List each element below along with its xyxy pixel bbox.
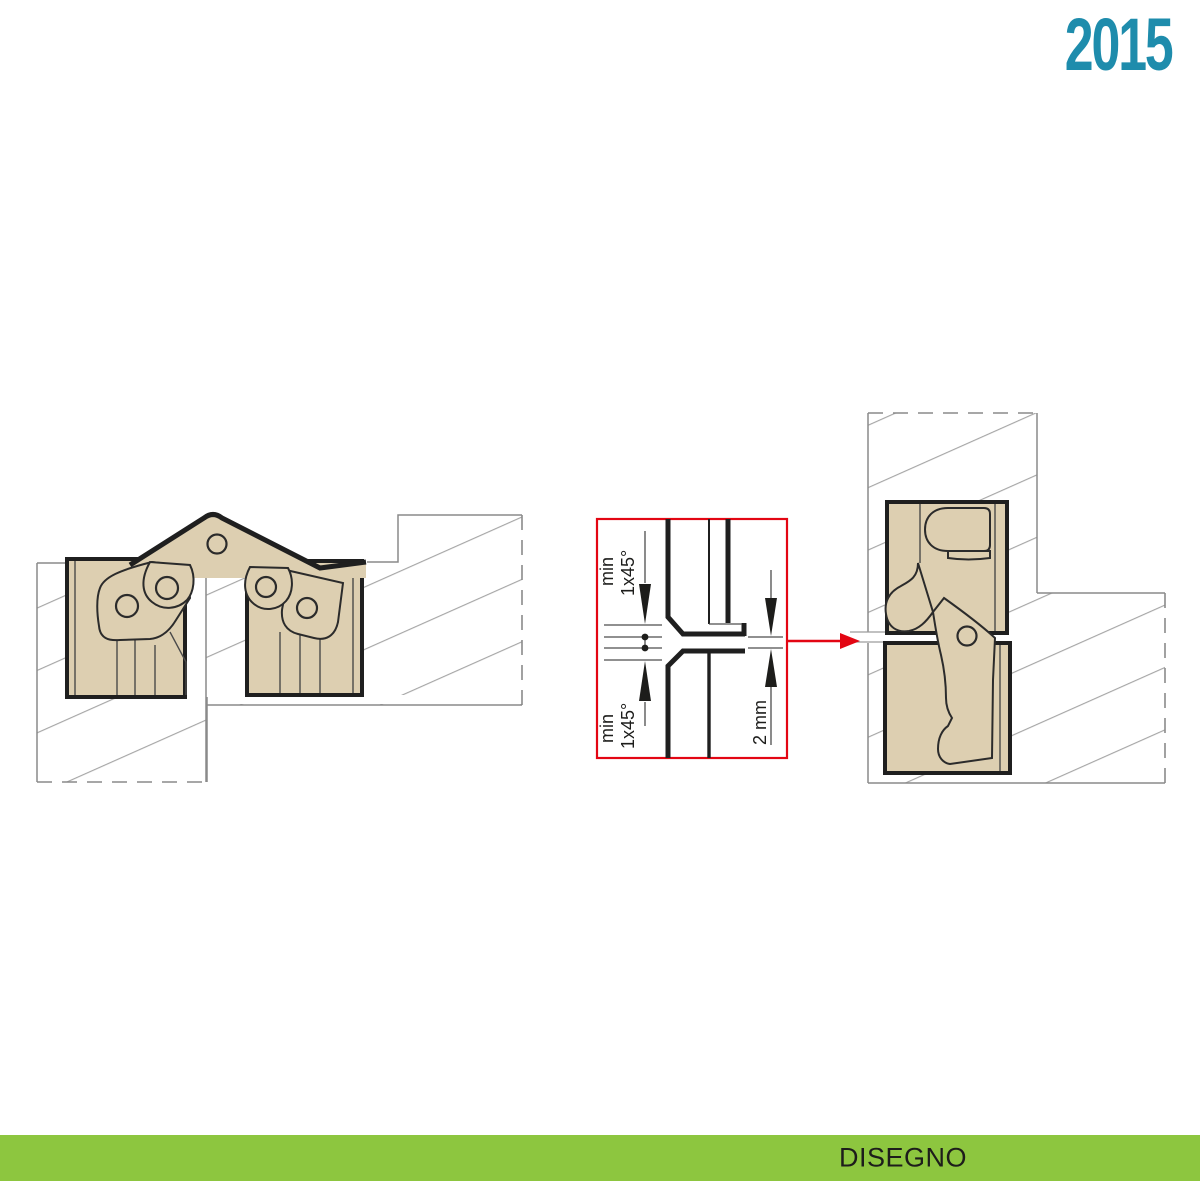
leader-arrowhead-icon: [840, 633, 860, 649]
gap-arrow-up: [765, 649, 777, 687]
hinge-cup: [925, 508, 990, 551]
hinge-cup-ledge: [948, 551, 990, 560]
view-hinge-closed-section: [850, 413, 1165, 783]
footer-section-label: DISEGNO: [839, 1143, 967, 1174]
top-chamfer-label-line2: 1x45°: [618, 550, 638, 596]
bottom-chamfer-label-line2: 1x45°: [618, 703, 638, 749]
right-knuckle-pin: [256, 577, 276, 597]
bridge-pivot-hole: [208, 535, 227, 554]
catalog-page: 2015: [0, 0, 1200, 1200]
closed-pivot-pin: [958, 627, 977, 646]
rebate-profile: [728, 519, 744, 636]
dim-dot-upper: [642, 634, 649, 641]
chamfer-arrow-up: [639, 661, 651, 701]
upper-edge-profile: [668, 519, 745, 634]
dim-dot-lower: [642, 645, 649, 652]
lower-edge-profile: [668, 651, 745, 758]
left-arm-pin: [116, 595, 138, 617]
chamfer-arrow-down: [639, 584, 651, 624]
bottom-chamfer-label-line1: min: [597, 714, 617, 743]
technical-drawing: min 1x45° min 1x45° 2 mm: [0, 0, 1200, 1200]
detail-chamfer-callout: min 1x45° min 1x45° 2 mm: [597, 519, 860, 758]
gap-label: 2 mm: [750, 700, 770, 745]
top-chamfer-label-line1: min: [597, 557, 617, 586]
gap-arrow-down: [765, 598, 777, 636]
view-hinge-open-section: [37, 515, 522, 783]
left-knuckle-pin: [156, 577, 178, 599]
footer-bar: DISEGNO: [0, 1135, 1200, 1181]
right-arm-pin: [297, 598, 317, 618]
